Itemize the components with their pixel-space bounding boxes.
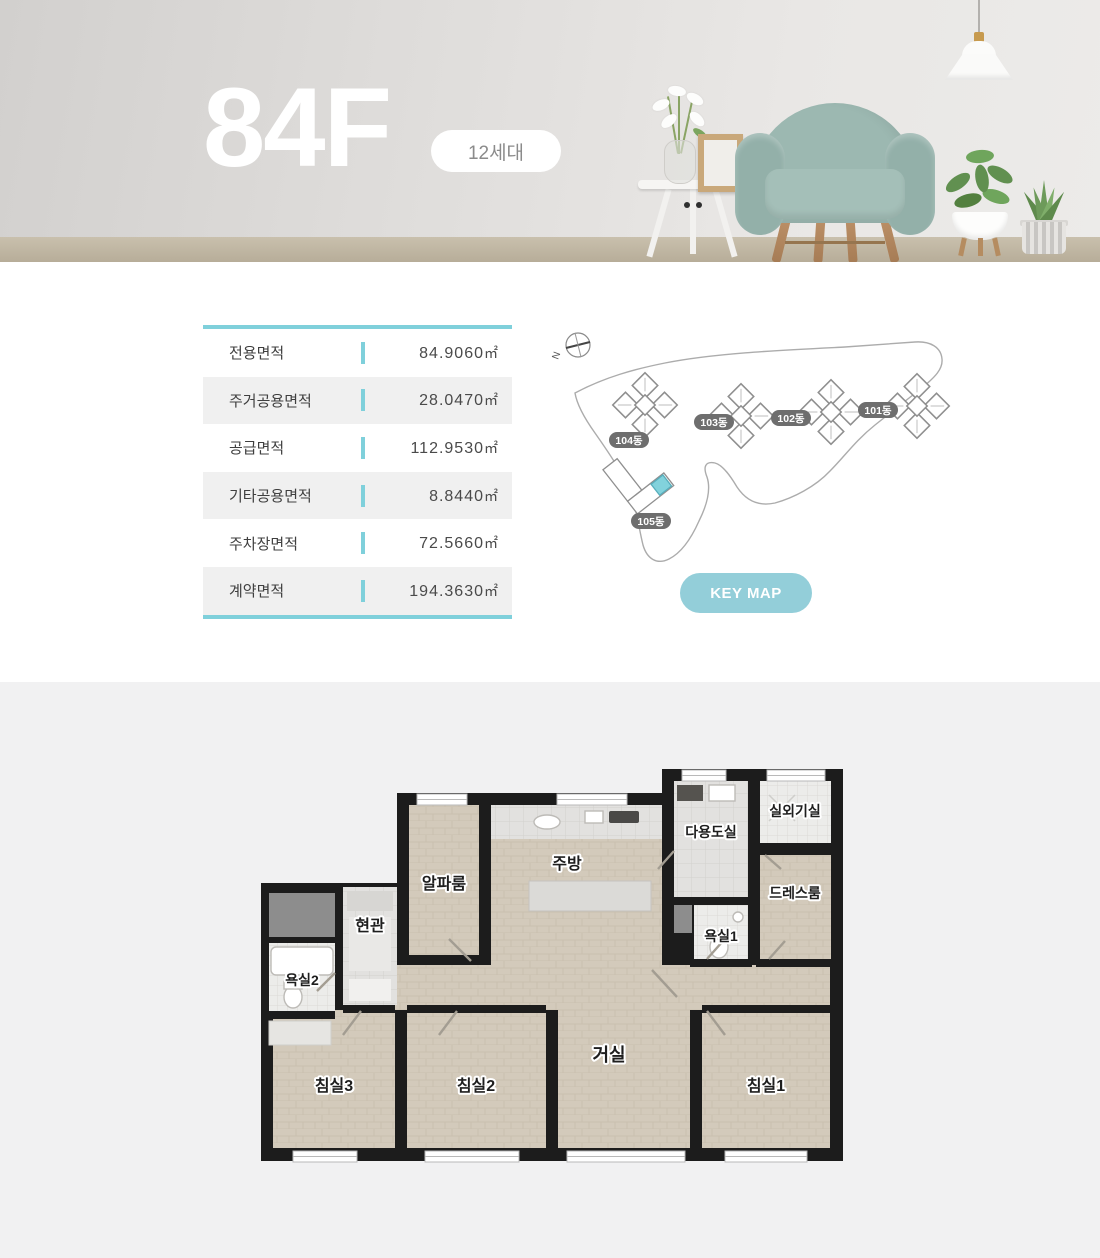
building-label-101: 101동 (858, 402, 898, 418)
spec-value: 8.8440㎡ (369, 486, 498, 506)
spec-label: 주거공용면적 (229, 390, 347, 411)
svg-text:104동: 104동 (615, 435, 643, 447)
area-info-section: 전용면적 84.9060㎡ 주거공용면적 28.0470㎡ 공급면적 112.9… (0, 262, 1100, 682)
svg-text:101동: 101동 (864, 405, 892, 417)
room-label-living: 거실 (592, 1045, 625, 1065)
divider (361, 342, 365, 364)
room-label-utility: 다용도실 (685, 824, 737, 840)
pendant-lamp (942, 0, 1014, 82)
room-label-bed2: 침실2 (457, 1076, 495, 1095)
floor-plan: 실외기실 다용도실 주방 알파룸 드레스룸 욕실1 현관 욕실2 거실 침실3 … (257, 765, 847, 1170)
building-label-105: 105동 (631, 513, 671, 529)
divider (361, 580, 365, 602)
area-spec-table: 전용면적 84.9060㎡ 주거공용면적 28.0470㎡ 공급면적 112.9… (203, 325, 512, 619)
spec-value: 84.9060㎡ (369, 343, 498, 363)
room-living-floor (558, 1010, 690, 1148)
household-count-badge: 12세대 (431, 130, 561, 172)
room-label-bed3: 침실3 (315, 1076, 353, 1095)
storage-box (269, 893, 335, 937)
svg-text:102동: 102동 (777, 413, 805, 425)
building-label-103: 103동 (694, 414, 734, 430)
svg-text:105동: 105동 (637, 516, 665, 528)
divider (361, 532, 365, 554)
hero-banner: 84F 12세대 (0, 0, 1100, 262)
divider (361, 437, 365, 459)
wood-floor (0, 237, 1100, 262)
room-label-kitchen: 주방 (552, 855, 582, 873)
spec-value: 72.5660㎡ (369, 533, 498, 553)
spec-label: 공급면적 (229, 437, 347, 458)
site-key-map: N 104동 103동 102동 101동 105동 (545, 315, 965, 565)
armchair (735, 103, 935, 261)
site-boundary (575, 342, 942, 561)
room-label-bath1: 욕실1 (704, 928, 738, 944)
unit-type-title: 84F (203, 72, 390, 184)
spec-value: 112.9530㎡ (369, 438, 498, 458)
spec-row-other-common: 기타공용면적 8.8440㎡ (203, 472, 512, 520)
spec-value: 194.3630㎡ (369, 581, 498, 601)
spec-label: 기타공용면적 (229, 485, 347, 506)
spec-value: 28.0470㎡ (369, 390, 498, 410)
divider (361, 485, 365, 507)
spec-row-contract: 계약면적 194.3630㎡ (203, 567, 512, 615)
floor-plan-section: 실외기실 다용도실 주방 알파룸 드레스룸 욕실1 현관 욕실2 거실 침실3 … (0, 682, 1100, 1258)
spec-row-common-residential: 주거공용면적 28.0470㎡ (203, 377, 512, 425)
compass-north-label: N (550, 350, 563, 361)
building-label-102: 102동 (771, 410, 811, 426)
corridor-floor (343, 965, 830, 1010)
room-label-dress: 드레스룸 (769, 885, 821, 901)
spec-label: 주차장면적 (229, 533, 347, 554)
closet (269, 1021, 331, 1045)
side-table (638, 180, 746, 260)
room-label-outdoor-unit: 실외기실 (769, 803, 821, 819)
room-dress-floor (760, 855, 831, 965)
apartment-unit-page: 84F 12세대 전용면적 84.9060㎡ 주거공용면적 28.0470㎡ 공… (0, 0, 1100, 1258)
spec-row-supply: 공급면적 112.9530㎡ (203, 424, 512, 472)
room-label-bath2: 욕실2 (285, 972, 319, 988)
potted-plant (938, 142, 1022, 258)
spec-row-parking: 주차장면적 72.5660㎡ (203, 519, 512, 567)
spec-row-exclusive: 전용면적 84.9060㎡ (203, 329, 512, 377)
divider (361, 389, 365, 411)
room-label-entrance: 현관 (355, 916, 385, 935)
spec-label: 계약면적 (229, 580, 347, 601)
spec-label: 전용면적 (229, 342, 347, 363)
room-label-bed1: 침실1 (747, 1076, 785, 1095)
key-map-button[interactable]: KEY MAP (680, 573, 812, 613)
compass-icon: N (550, 333, 590, 361)
svg-text:103동: 103동 (700, 417, 728, 429)
room-label-alpha: 알파룸 (422, 875, 466, 893)
aloe-plant (1012, 186, 1076, 256)
building-label-104: 104동 (609, 432, 649, 448)
